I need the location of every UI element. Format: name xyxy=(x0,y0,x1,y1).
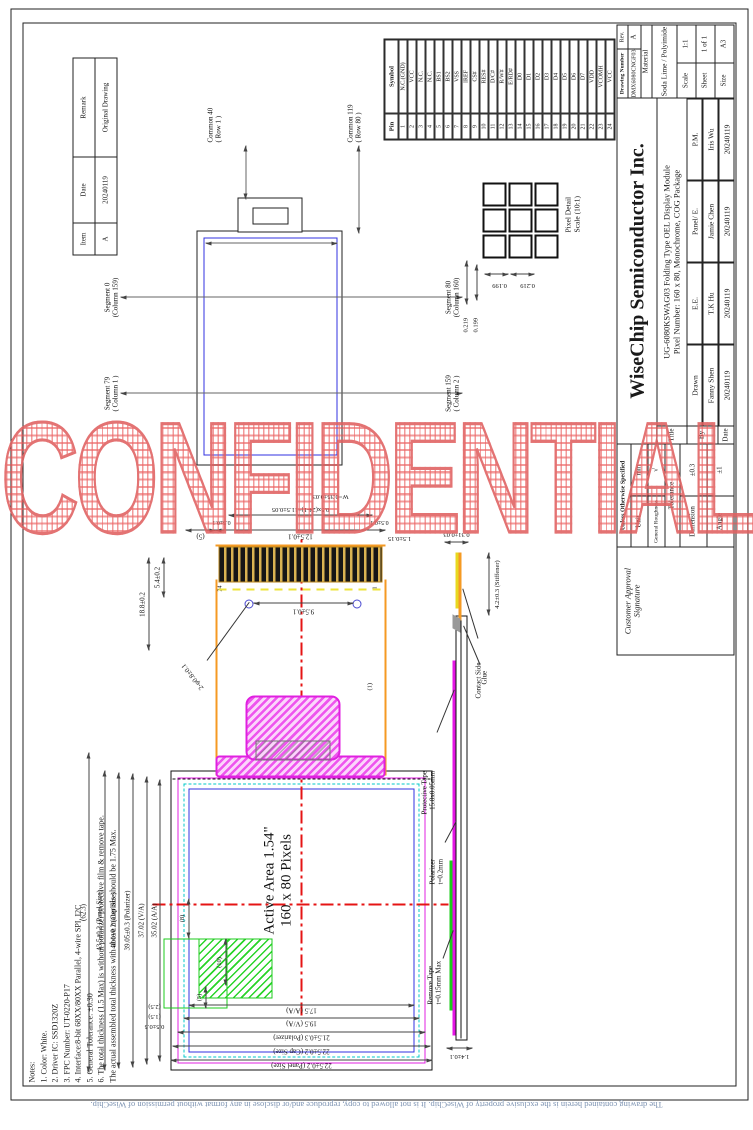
pin-number: 8 xyxy=(461,113,470,139)
fpc-edge-top xyxy=(215,579,217,775)
unless-otherwise-specified: Unless Otherwise Specified xyxy=(616,443,631,547)
role-column: P.M. Iris Wu 20240119 xyxy=(686,98,734,180)
pin-number: 13 xyxy=(506,113,515,139)
segment-col159-label: Segment 0(Column 159) xyxy=(103,258,119,297)
pin-symbol: D3 xyxy=(542,39,551,113)
active-area-text: Active Area 1.54" 160 x 80 Pixels xyxy=(278,772,313,880)
fpc-dim-pitch: 0.5x(24-1)=11.5±0.05 xyxy=(271,505,328,512)
pin-symbol: VCC xyxy=(605,39,614,113)
unit-label: Unit xyxy=(630,495,648,547)
role-date: 20240119 xyxy=(718,98,734,180)
pin-table-row: 2 VCC xyxy=(407,39,416,139)
notes-heading: Notes: xyxy=(26,815,38,1082)
drawing-sheet: Notes: 1. Color: White.2. Driver IC: SSD… xyxy=(0,0,753,1130)
common-top-label: Common 40( Row 1 ) xyxy=(206,107,222,142)
pin-table-row: 14 D0 xyxy=(515,39,524,139)
fpc-edge-bottom xyxy=(384,579,386,775)
dim-cap-w: 40.1±0.2 (Cap Size) xyxy=(109,892,117,948)
pin-symbol: D2 xyxy=(533,39,542,113)
pin-number: 24 xyxy=(605,113,614,139)
role-date: 20240119 xyxy=(718,262,734,344)
scale-label: Scale xyxy=(676,62,696,98)
pin-symbol: D6 xyxy=(569,39,578,113)
angle-value: ±1 xyxy=(706,443,734,496)
dim-cap-h: 22.5±0.2 (Cap Size) xyxy=(273,1047,329,1055)
sheet-value: 1 of 1 xyxy=(695,24,715,63)
pin-number: 18 xyxy=(551,113,560,139)
pin-number: 14 xyxy=(515,113,524,139)
pin-number: 2 xyxy=(407,113,416,139)
fpc-thickness-dim: 0.31±0.03 xyxy=(443,530,469,537)
fpc-dim-1: (1) xyxy=(366,682,373,690)
rev-label: Rev. xyxy=(616,24,628,49)
protective-tape-label: Protective Tape15.8x0.05mm xyxy=(420,770,436,814)
pin-number: 15 xyxy=(524,113,533,139)
pin-symbol: D1 xyxy=(524,39,533,113)
pin-number: 23 xyxy=(596,113,605,139)
date-row-label: Date xyxy=(717,425,734,444)
pin-number: 3 xyxy=(416,113,425,139)
notes-list: 1. Color: White.2. Driver IC: SSD1320Z3.… xyxy=(38,815,119,1082)
symbol-header: Symbol xyxy=(384,39,398,113)
revision-date: 20240119 xyxy=(94,156,117,223)
dim-overall: (62.3) xyxy=(79,904,87,921)
pin-table-row: 19 D5 xyxy=(560,39,569,139)
dim-va-h: 19.5 (V/A) xyxy=(286,1019,317,1027)
drawing-page: { "watermark": "CONFIDENTIAL", "footer":… xyxy=(0,0,753,1130)
pin-number: 7 xyxy=(452,113,461,139)
pin-symbol: N.C. xyxy=(416,39,425,113)
by-row-label: By xyxy=(686,425,718,444)
roughness-symbol: √ xyxy=(647,443,665,496)
segment-col1-label: Segment 79( Column 1 ) xyxy=(103,357,119,393)
pin-table-row: 22 VDD xyxy=(587,39,596,139)
dim-15: (1.5) xyxy=(148,1012,160,1019)
role-name: Fanny Shen xyxy=(702,344,718,426)
pin-number: 21 xyxy=(578,113,587,139)
fpc-dim-finger-len: 1.5±0.15 xyxy=(387,534,410,541)
fpc-connector-fingers xyxy=(218,546,382,582)
dim-pol-h: 21.5±0.3 (Polarizer) xyxy=(273,1033,330,1041)
pin-table: Pin Symbol 1 N.C.(GND) 2 VCC 3 N.C. xyxy=(383,38,615,140)
fpc-dim-5: (5) xyxy=(196,532,204,540)
pixel-dim-col-pitch: 0.219 xyxy=(462,317,469,332)
pin-symbol: VCOMH xyxy=(596,39,605,113)
contact-gold-layer xyxy=(455,552,458,608)
fpc-dim-holes: 9.5±0.1 xyxy=(292,607,313,615)
revision-header-item: Item xyxy=(72,222,95,255)
role-date: 20240119 xyxy=(718,180,734,262)
centerline-vertical xyxy=(152,904,448,906)
revision-header-remark: Remark xyxy=(72,57,95,157)
drawing-number-value: DMX6080CNGF03 xyxy=(627,48,641,98)
pin-number: 5 xyxy=(434,113,443,139)
dim-25: (2.5) xyxy=(148,1002,160,1009)
size-label: Size xyxy=(714,62,734,98)
scale-value: 1:1 xyxy=(676,24,696,63)
pixel-dim-col: 0.199 xyxy=(472,317,479,332)
pixel-dim-row: 0.199 xyxy=(492,281,507,288)
fpc-dim-length: 18.8±0.2 xyxy=(138,592,146,617)
pixel-grid xyxy=(482,182,558,258)
pin-symbol: BS2 xyxy=(443,39,452,113)
role-date: 20240119 xyxy=(718,344,734,426)
revision-item: A xyxy=(94,222,117,255)
pin-symbol: D/C# xyxy=(488,39,497,113)
pin-table-row: 3 N.C. xyxy=(416,39,425,139)
pin-table-row: 5 BS1 xyxy=(434,39,443,139)
role-title: Drawn xyxy=(686,344,702,426)
pin-number: 12 xyxy=(497,113,506,139)
fpc-dim-54: 5.4±0.2 xyxy=(153,566,161,587)
revision-header-date: Date xyxy=(72,156,95,223)
property-notice: The drawing contained herein is the excl… xyxy=(0,1100,753,1110)
pin-table-row: 7 VSS xyxy=(452,39,461,139)
schematic-active-area xyxy=(203,237,337,455)
pin-table-row: 12 R/W# xyxy=(497,39,506,139)
role-name: Iris Wu xyxy=(702,98,718,180)
yellow-dashed-line xyxy=(218,588,382,590)
pin-table-row: 11 D/C# xyxy=(488,39,497,139)
role-title: Panel/ E. xyxy=(686,180,702,262)
fpc-dim-width: 12.5±0.1 xyxy=(288,532,313,540)
pin-table-row: 6 BS2 xyxy=(443,39,452,139)
pin-table-header: Pin Symbol xyxy=(384,39,398,139)
pin-symbol: D0 xyxy=(515,39,524,113)
pin-symbol: D5 xyxy=(560,39,569,113)
pin-table-rows: 1 N.C.(GND) 2 VCC 3 N.C. 4 N.C. xyxy=(398,39,614,139)
pin-table-row: 1 N.C.(GND) xyxy=(398,39,407,139)
remove-tape-label: Remove Tapet=0.15mm Max xyxy=(426,960,442,1004)
pin-number: 20 xyxy=(569,113,578,139)
pin-table-row: 24 VCC xyxy=(605,39,614,139)
pin-number: 16 xyxy=(533,113,542,139)
pixel-dim-row-pitch: 0.219 xyxy=(520,281,535,288)
pin-table-row: 23 VCOMH xyxy=(596,39,605,139)
pin-table-row: 15 D1 xyxy=(524,39,533,139)
dim-va-w: 37.02 (V/A) xyxy=(137,903,145,937)
material-value: Soda Lime / Polyimide xyxy=(651,24,677,98)
note-line: 4. Interface:8-bit 68XX/80XX Parallel, 4… xyxy=(72,815,84,1082)
pin-symbol: VCC xyxy=(407,39,416,113)
role-name: Jamie Chen xyxy=(702,180,718,262)
pin-number: 4 xyxy=(425,113,434,139)
segment-col2-label: Segment 159( Column 2 ) xyxy=(444,356,460,393)
approval-roles: Drawn Fanny Shen 20240119 E.E. T.K Hu 20… xyxy=(686,98,734,426)
pin-table-row: 8 IREF xyxy=(461,39,470,139)
pixel-detail-title: Pixel DetailScale (10:1) xyxy=(564,196,581,232)
pin-symbol: R/W# xyxy=(497,39,506,113)
role-title: P.M. xyxy=(686,98,702,180)
pin-header: Pin xyxy=(384,113,398,139)
pin-number: 11 xyxy=(488,113,497,139)
dimension-label: Dimension xyxy=(679,495,707,547)
dim-aa-h: 17.5 (A/A) xyxy=(286,1006,317,1014)
title-row-label: Title xyxy=(656,425,687,444)
pin-table-row: 10 RES# xyxy=(479,39,488,139)
note-line: 1. Color: White. xyxy=(38,815,50,1082)
pin-number: 10 xyxy=(479,113,488,139)
fpc-dim-margin-top: 0.5±0.1 xyxy=(212,518,230,525)
pin-table-row: 20 D6 xyxy=(569,39,578,139)
pin-table-row: 18 D4 xyxy=(551,39,560,139)
pin-symbol: RES# xyxy=(479,39,488,113)
pin-symbol: E/RD# xyxy=(506,39,515,113)
pin-table-row: 9 CS# xyxy=(470,39,479,139)
role-column: E.E. T.K Hu 20240119 xyxy=(686,262,734,344)
green-zone-hatch xyxy=(198,938,272,998)
stiffener-dim-label: 4.2±0.3 (Stiffener) xyxy=(493,560,500,608)
dim-05: 0.5±0.5 xyxy=(144,1022,164,1029)
pin-symbol: VSS xyxy=(452,39,461,113)
customer-approval-box: Customer Approval Signature xyxy=(616,546,734,655)
pin-number: 1 xyxy=(398,113,407,139)
dim-g8: (8) xyxy=(178,914,185,922)
dim-g10: (10) xyxy=(215,957,222,968)
role-column: Drawn Fanny Shen 20240119 xyxy=(686,344,734,426)
pin-number: 17 xyxy=(542,113,551,139)
pin-symbol: BS1 xyxy=(434,39,443,113)
dim-panel-h: 22.5±0.2 (Panel Size) xyxy=(271,1061,332,1069)
pin-table-row: 4 N.C. xyxy=(425,39,434,139)
glass-layer-line xyxy=(460,617,461,1038)
schematic-ic xyxy=(252,207,288,224)
common-bottom-label: Common 119( Row 80 ) xyxy=(346,104,362,142)
material-label: Material xyxy=(640,24,652,98)
pin-table-row: 13 E/RD# xyxy=(506,39,515,139)
role-column: Panel/ E. Jamie Chen 20240119 xyxy=(686,180,734,262)
stiffener-inner-gray xyxy=(255,740,330,760)
tolerance-label: Tolerance xyxy=(664,443,680,547)
role-title: E.E. xyxy=(686,262,702,344)
drawing-number-label: Drawing Number xyxy=(616,48,628,98)
pin-table-row: 16 D2 xyxy=(533,39,542,139)
pin-table-row: 17 D3 xyxy=(542,39,551,139)
unit-value: mm xyxy=(630,443,648,496)
rev-value: A xyxy=(627,24,641,49)
fpc-dim-finger-w: W=0.35±0.03 xyxy=(312,492,348,499)
dimension-value: ±0.3 xyxy=(679,443,707,496)
pin-symbol: N.C.(GND) xyxy=(398,39,407,113)
glue-label: Glue xyxy=(480,670,488,684)
total-thickness-dim: 1.4±0.1 xyxy=(449,1052,469,1059)
pin-number: 19 xyxy=(560,113,569,139)
segment-col160-label: Segment 80(Column 160) xyxy=(444,258,460,297)
note-line: 3. FPC Number: UT-0220-P17 xyxy=(61,815,73,1082)
dim-pol-w: 39.05±0.3 (Polarizer) xyxy=(123,890,131,950)
revision-remark: Original Drawing xyxy=(94,57,117,157)
polarizer-label: Polarizert=0.2mm xyxy=(428,858,444,884)
size-value: A3 xyxy=(714,24,734,63)
sheet-label: Sheet xyxy=(695,62,715,98)
pin-symbol: D7 xyxy=(578,39,587,113)
pin-table-row: 21 D7 xyxy=(578,39,587,139)
pin-symbol: IREF xyxy=(461,39,470,113)
fpc-dim-margin-bot: 0.5±0.1 xyxy=(370,518,388,525)
role-name: T.K Hu xyxy=(702,262,718,344)
pin-symbol: CS# xyxy=(470,39,479,113)
dim-panel-w: 43.5±0.2 (Panel Size) xyxy=(95,890,103,951)
angle-label: Angle xyxy=(706,495,734,547)
pin-number: 22 xyxy=(587,113,596,139)
pin-symbol: N.C. xyxy=(425,39,434,113)
note-line: 2. Driver IC: SSD1320Z xyxy=(49,815,61,1082)
pin-number: 6 xyxy=(443,113,452,139)
pin-symbol: VDD xyxy=(587,39,596,113)
dim-aa-w: 35.02 (A/A) xyxy=(150,903,158,937)
roughness-label: General Roughness xyxy=(647,495,665,547)
dim-g5: (5) xyxy=(195,993,202,1001)
pin-number: 9 xyxy=(470,113,479,139)
drawing-title: UG-6080KSWAG03 Folding Type OEL Display … xyxy=(656,97,687,426)
pin-symbol: D4 xyxy=(551,39,560,113)
company-name: WiseChip Semiconductor Inc. xyxy=(616,97,657,444)
